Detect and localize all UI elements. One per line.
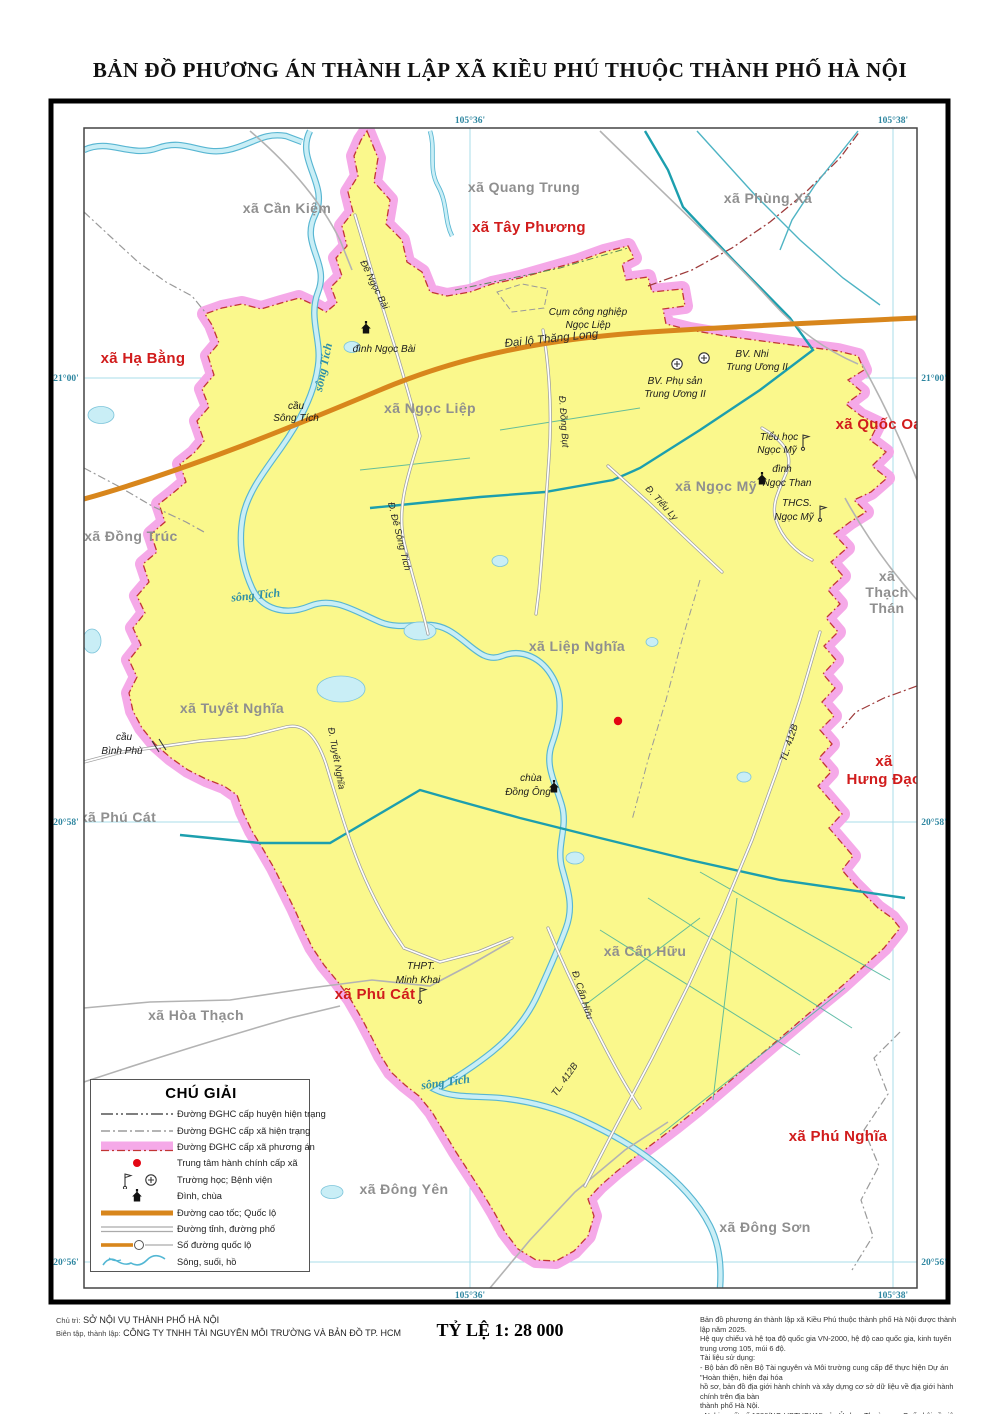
svg-text:105°36': 105°36' — [455, 115, 485, 126]
map-sheet: BẢN ĐỒ PHƯƠNG ÁN THÀNH LẬP XÃ KIỀU PHÚ T… — [0, 0, 1000, 1414]
poi-label: đình Ngọc Bài — [353, 344, 417, 355]
legend-item: Số đường quốc lộ — [99, 1237, 303, 1253]
district-boundary-symbol — [99, 1106, 177, 1122]
credit-org: SỞ NỘI VỤ THÀNH PHỐ HÀ NỘI — [83, 1315, 219, 1325]
poi-label: Ngọc Mỹ — [757, 445, 797, 456]
poi-label: cầu — [116, 731, 133, 743]
adjacent-commune-label: xã — [875, 753, 893, 770]
adjacent-commune-label: Hưng Đạo — [847, 771, 922, 788]
river-symbol — [99, 1253, 177, 1271]
legend-item: Đường ĐGHC cấp xã phương án — [99, 1139, 303, 1155]
proposed-boundary-symbol — [99, 1139, 177, 1155]
highway-symbol — [99, 1205, 177, 1221]
poi-label: Trung Ương II — [644, 389, 706, 400]
adjacent-commune-label: xã Phú Cát — [335, 986, 416, 1003]
commune-label: xã Ngọc Liệp — [384, 400, 476, 416]
commune-boundary-symbol — [99, 1123, 177, 1139]
poi-label: Ngọc Than — [763, 478, 812, 489]
street-symbol — [99, 1221, 177, 1237]
commune-label: xã Đông Sơn — [719, 1219, 810, 1235]
legend-item: Đường tỉnh, đường phố — [99, 1221, 303, 1237]
school-hospital-symbol — [99, 1171, 177, 1189]
svg-text:105°38': 105°38' — [878, 115, 908, 126]
svg-text:21°00': 21°00' — [921, 373, 946, 384]
map-scale: TỶ LỆ 1: 28 000 — [350, 1320, 650, 1341]
svg-text:20°58': 20°58' — [53, 817, 78, 828]
poi-label: Ngọc Mỹ — [774, 512, 814, 523]
commune-label: Thạch — [865, 584, 908, 600]
commune-label: xã Cấn Hữu — [604, 943, 687, 959]
map-notes: Bản đồ phương án thành lập xã Kiều Phú t… — [700, 1315, 968, 1414]
commune-label: xã Tuyết Nghĩa — [180, 700, 284, 716]
commune-label: xã Phùng Xá — [724, 190, 812, 206]
commune-label: xã Đông Yên — [360, 1181, 449, 1197]
poi-label: Ngọc Liệp — [565, 320, 610, 331]
poi-label: Bình Phù — [101, 746, 143, 757]
svg-text:105°36': 105°36' — [455, 1290, 485, 1301]
commune-label: xã Đồng Trúc — [84, 528, 177, 544]
commune-label: xã Hòa Thạch — [148, 1007, 244, 1023]
legend-item: Trung tâm hành chính cấp xã — [99, 1155, 303, 1171]
credit-role: Biên tập, thành lập: — [56, 1329, 121, 1338]
poi-label: Sông Tích — [273, 413, 319, 424]
adjacent-commune-label: xã Tây Phương — [472, 219, 586, 236]
legend-item: Đường cao tốc; Quốc lộ — [99, 1204, 303, 1220]
credit-role: Chủ trì: — [56, 1316, 81, 1325]
poi-label: Đồng Ông — [505, 785, 551, 798]
commune-label: xã Quang Trung — [468, 179, 580, 195]
poi-label: BV. Phụ sản — [648, 375, 703, 387]
poi-label: chùa — [520, 773, 542, 784]
adjacent-commune-label: xã Phú Nghĩa — [789, 1128, 888, 1145]
svg-text:20°56': 20°56' — [53, 1257, 78, 1268]
hospital-icon — [699, 353, 709, 363]
poi-label: cầu — [288, 400, 305, 412]
svg-text:105°38': 105°38' — [878, 1290, 908, 1301]
commune-label: xã Ngọc Mỹ — [675, 478, 757, 494]
svg-text:21°00': 21°00' — [53, 373, 78, 384]
poi-label: Cụm công nghiệp — [549, 307, 628, 318]
commune-label: xã — [879, 568, 895, 584]
legend-item: Đường ĐGHC cấp huyện hiện trạng — [99, 1106, 303, 1122]
legend-item: Trường học; Bệnh viện — [99, 1172, 303, 1188]
poi-label: đình — [772, 464, 792, 475]
admin-center-symbol — [99, 1155, 177, 1171]
legend-item: Sông, suối, hồ — [99, 1254, 303, 1270]
temple-symbol — [99, 1187, 177, 1205]
adjacent-commune-label: xã Hạ Bằng — [101, 349, 186, 367]
legend-title: CHÚ GIẢI — [99, 1085, 303, 1102]
poi-label: BV. Nhi — [735, 349, 769, 360]
legend-item: Đình, chùa — [99, 1188, 303, 1204]
poi-label: THPT. — [407, 961, 435, 972]
adjacent-commune-label: xã Quốc Oai — [836, 416, 927, 433]
commune-label: xã Liệp Nghĩa — [529, 638, 625, 654]
poi-label: Tiểu học — [760, 431, 798, 443]
commune-label: xã Cần Kiệm — [243, 200, 331, 216]
legend: CHÚ GIẢI Đường ĐGHC cấp huyện hiện trạng… — [90, 1079, 310, 1272]
svg-text:20°56': 20°56' — [921, 1257, 946, 1268]
hospital-icon — [672, 359, 682, 369]
svg-text:20°58': 20°58' — [921, 817, 946, 828]
commune-label: xã Phú Cát — [80, 809, 156, 825]
commune-label: Thán — [869, 600, 904, 616]
poi-label: Trung Ương II — [726, 362, 788, 373]
poi-label: THCS. — [782, 498, 812, 509]
legend-item: Đường ĐGHC cấp xã hiện trạng — [99, 1122, 303, 1138]
admin-center-dot — [614, 717, 622, 725]
poi-label: Minh Khai — [396, 975, 441, 986]
route-number-symbol — [99, 1237, 177, 1253]
